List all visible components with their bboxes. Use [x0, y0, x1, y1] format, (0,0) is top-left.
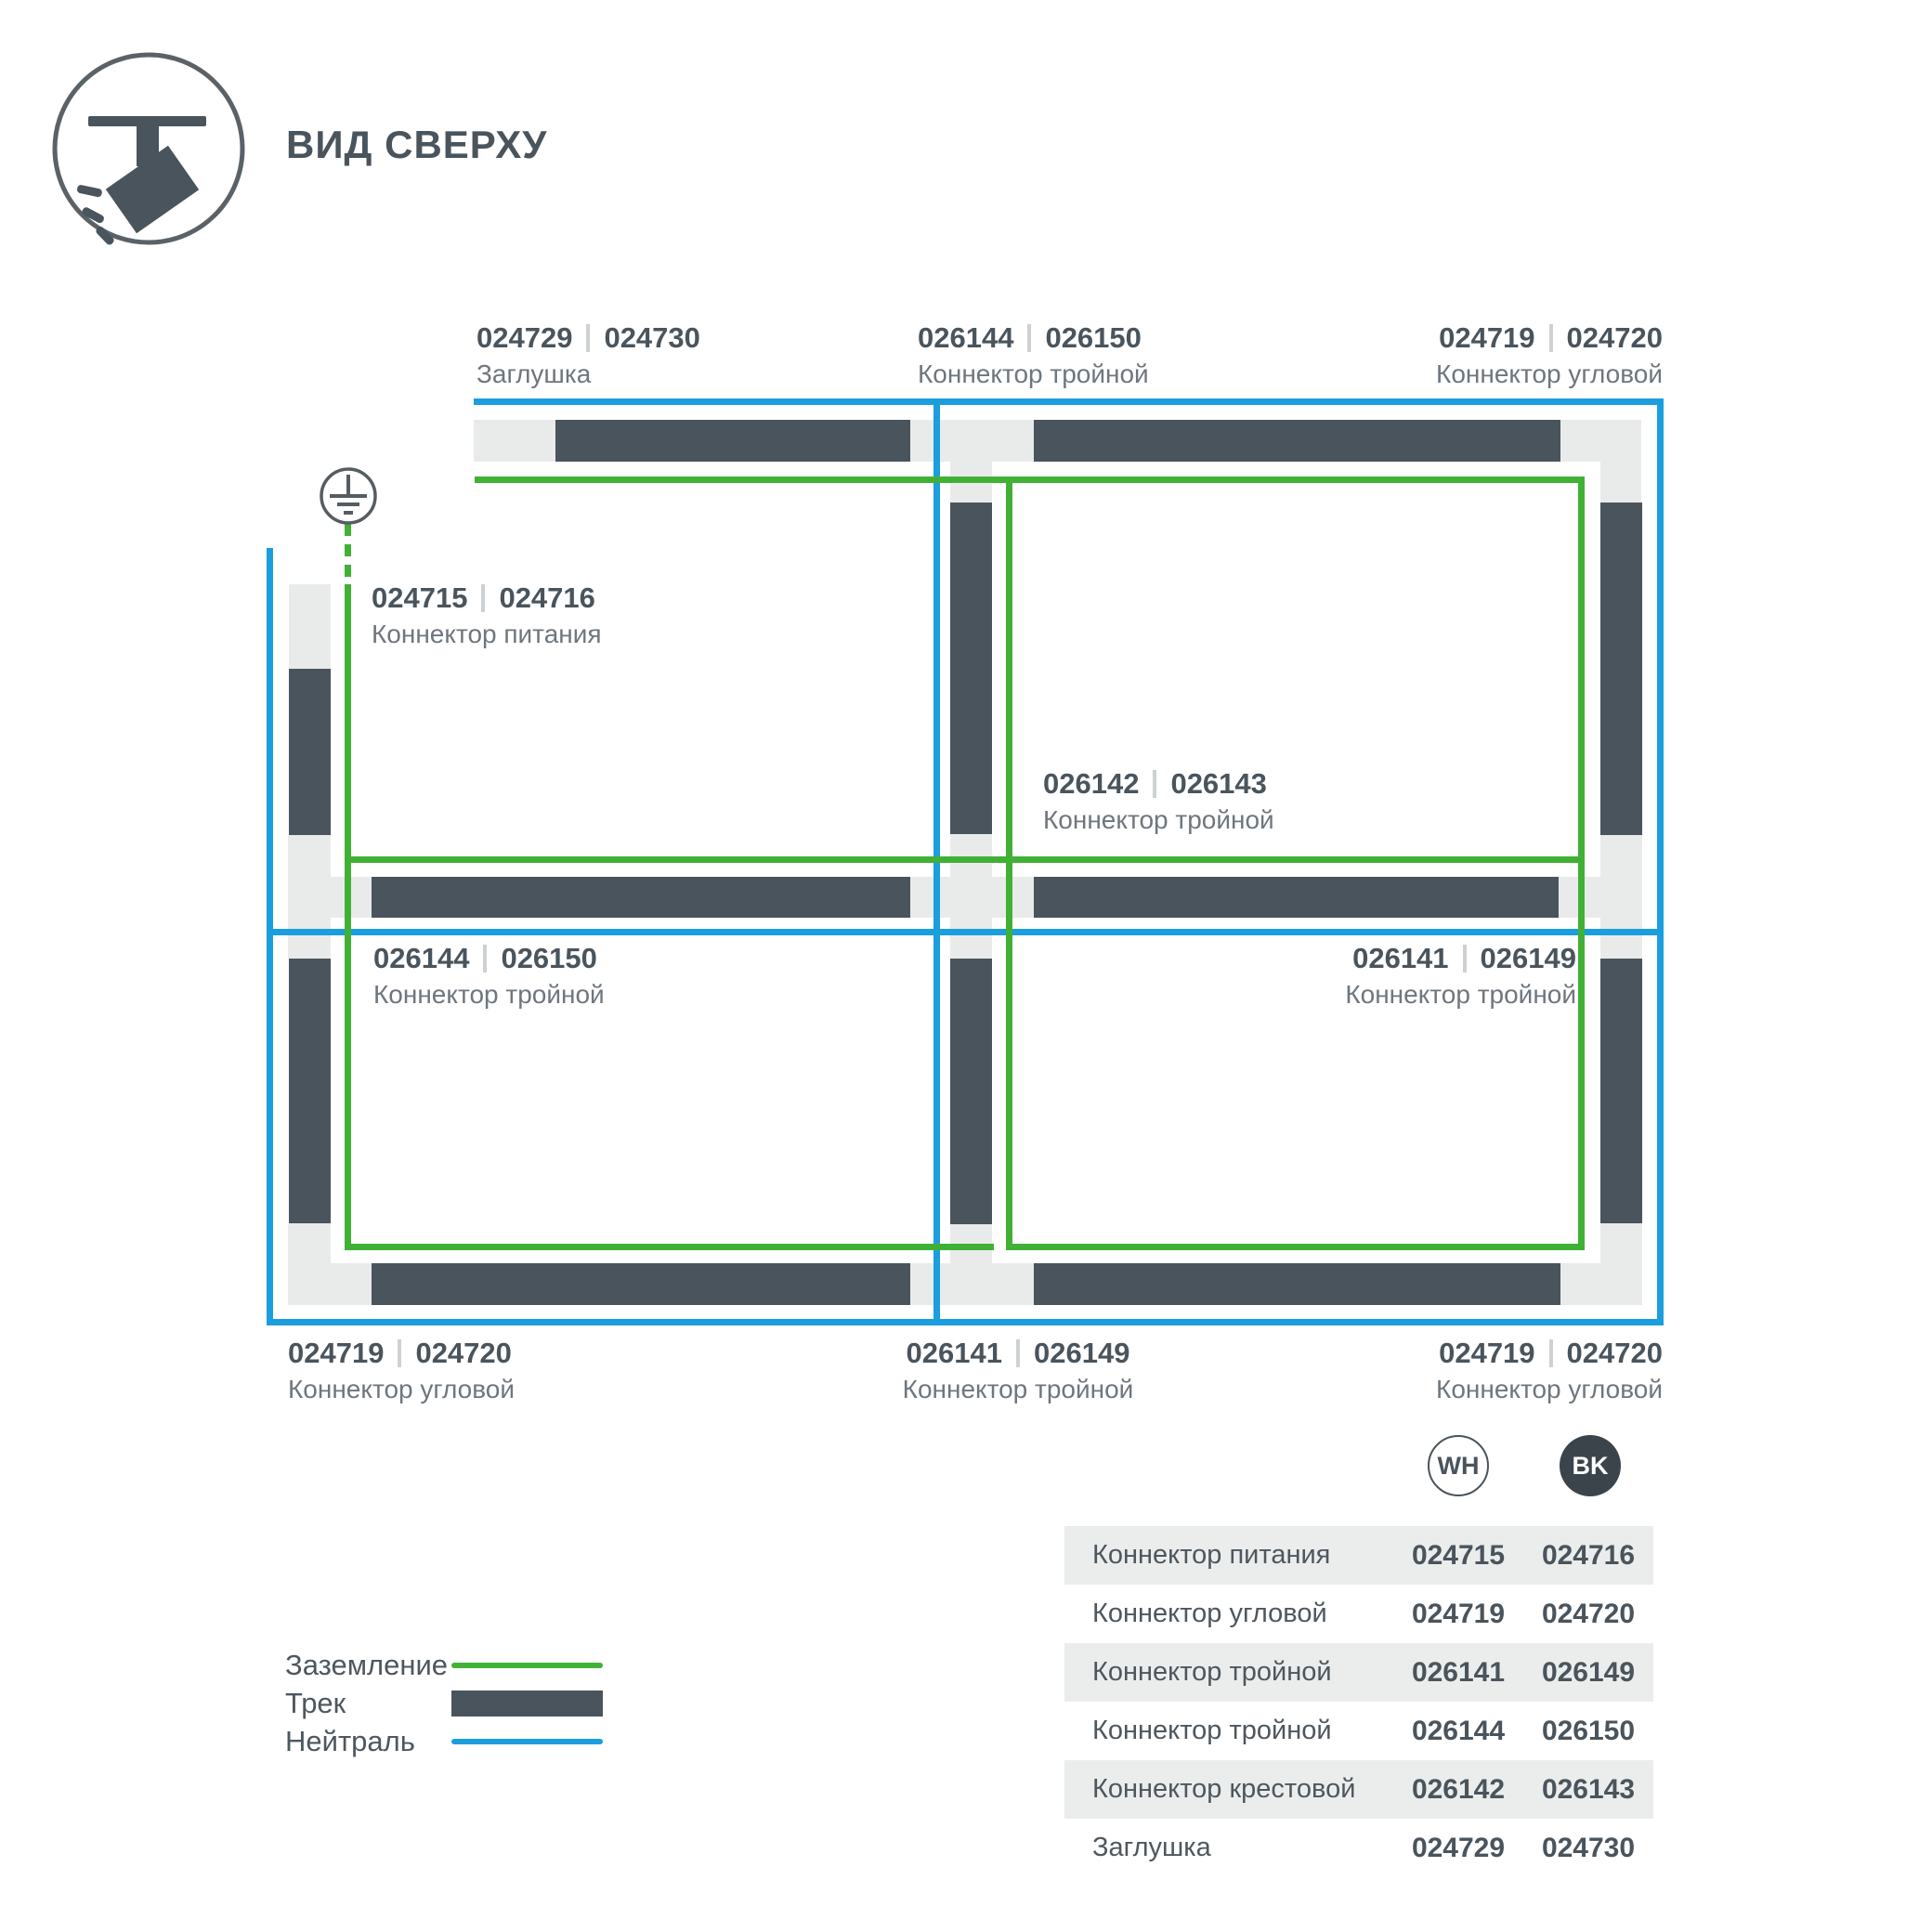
label-cross-connector: 026142026143 Коннектор тройной: [1043, 769, 1274, 835]
separator: [481, 584, 485, 612]
neutral-line-swatch: [451, 1739, 603, 1744]
neutral-line-bottom: [267, 1319, 1664, 1325]
legend-label: Заземление: [285, 1649, 448, 1682]
label-corner-bottom-right: 024719024720 Коннектор угловой: [1436, 1338, 1663, 1404]
track-segment: [372, 877, 910, 918]
row-wh: 026142: [1393, 1774, 1523, 1806]
connector-corner-bottom-right-leg: [1600, 1223, 1642, 1305]
track-spotlight-icon: [51, 51, 246, 246]
row-bk: 024720: [1523, 1599, 1653, 1630]
connector-tee-top: [910, 420, 1034, 462]
article-bk: 024720: [415, 1338, 511, 1367]
connector-endcap: [474, 420, 555, 462]
label-power-connector: 024715024716 Коннектор питания: [372, 583, 602, 649]
row-wh: 026141: [1393, 1657, 1523, 1689]
track-segment: [372, 1263, 910, 1305]
part-name: Коннектор тройной: [903, 1376, 1134, 1404]
badge-label: WH: [1438, 1452, 1480, 1481]
neutral-line-top: [474, 398, 1664, 405]
color-badge-wh: WH: [1428, 1435, 1489, 1496]
row-name: Коннектор крестовой: [1064, 1774, 1393, 1805]
separator: [586, 324, 590, 352]
row-wh: 026144: [1393, 1716, 1523, 1747]
row-bk: 026143: [1523, 1774, 1653, 1806]
article-bk: 026149: [1481, 944, 1576, 973]
connector-cross-stem: [950, 834, 992, 959]
row-bk: 026150: [1523, 1716, 1653, 1747]
ground-line-middle: [345, 856, 1585, 863]
separator: [1016, 1339, 1020, 1367]
track-segment: [1034, 877, 1559, 918]
connector-tee-right-bar: [1600, 835, 1642, 959]
table-row: Коннектор крестовой 026142 026143: [1064, 1760, 1653, 1819]
article-bk: 024720: [1567, 323, 1663, 352]
row-name: Коннектор питания: [1064, 1540, 1393, 1571]
article-bk: 024730: [604, 323, 699, 352]
ground-line-swatch: [451, 1663, 603, 1668]
article-wh: 026144: [373, 944, 469, 973]
part-name: Коннектор угловой: [1436, 1376, 1663, 1404]
label-endcap-top: 024729024730 Заглушка: [476, 323, 700, 389]
legend-label: Нейтраль: [285, 1725, 415, 1758]
legend-item-track: Трек: [285, 1686, 603, 1721]
connector-tee-left-stem: [288, 877, 372, 918]
table-row: Заглушка 024729 024730: [1064, 1819, 1653, 1877]
row-name: Заглушка: [1064, 1833, 1393, 1863]
ground-line-dashed: [345, 524, 351, 585]
connector-tee-bottom: [910, 1263, 1034, 1305]
article-wh: 026142: [1043, 769, 1139, 798]
track-segment: [555, 420, 910, 462]
article-wh: 026141: [1352, 944, 1448, 973]
part-name: Коннектор угловой: [1436, 360, 1663, 389]
row-wh: 024715: [1393, 1540, 1523, 1572]
table-row: Коннектор тройной 026144 026150: [1064, 1702, 1653, 1760]
ground-line-center: [1006, 476, 1012, 1250]
article-bk: 026150: [1045, 323, 1141, 352]
separator: [1027, 324, 1031, 352]
track-segment: [950, 503, 992, 834]
article-wh: 024729: [476, 323, 572, 352]
table-row: Коннектор тройной 026141 026149: [1064, 1643, 1653, 1702]
connector-corner-bottom-left: [288, 1263, 372, 1305]
neutral-line-right: [1657, 398, 1664, 1325]
part-name: Коннектор тройной: [1345, 981, 1576, 1010]
article-bk: 026150: [501, 944, 596, 973]
row-name: Коннектор угловой: [1064, 1599, 1393, 1629]
row-wh: 024729: [1393, 1833, 1523, 1864]
article-wh: 024719: [1439, 323, 1534, 352]
track-segment: [1034, 1263, 1560, 1305]
connector-corner-top-right-leg: [1600, 462, 1641, 503]
row-bk: 026149: [1523, 1657, 1653, 1689]
separator: [1463, 945, 1467, 973]
separator: [398, 1339, 401, 1367]
connector-power: [289, 584, 331, 669]
neutral-line-left: [267, 548, 273, 1325]
ground-line-left: [345, 584, 351, 1250]
label-tee-bottom: 026141026149 Коннектор тройной: [879, 1338, 1157, 1404]
article-bk: 024720: [1567, 1338, 1663, 1367]
separator: [483, 945, 487, 973]
label-tee-top: 026144026150 Коннектор тройной: [918, 323, 1149, 389]
parts-table: WH BK Коннектор питания 024715 024716 Ко…: [1064, 1526, 1653, 1877]
part-name: Коннектор тройной: [373, 981, 605, 1010]
track-segment: [1600, 959, 1642, 1223]
part-name: Заглушка: [476, 360, 700, 389]
article-wh: 024715: [372, 583, 467, 612]
label-tee-right: 026141026149 Коннектор тройной: [1345, 944, 1576, 1010]
separator: [1153, 770, 1156, 798]
row-name: Коннектор тройной: [1064, 1657, 1393, 1688]
table-row: Коннектор угловой 024719 024720: [1064, 1585, 1653, 1643]
legend-item-ground: Заземление: [285, 1648, 603, 1683]
neutral-line-middle: [269, 929, 1657, 935]
connector-corner-top-right: [1560, 420, 1641, 462]
article-wh: 026141: [907, 1338, 1002, 1367]
article-bk: 026149: [1034, 1338, 1129, 1367]
part-name: Коннектор питания: [372, 620, 602, 649]
badge-label: BK: [1573, 1452, 1609, 1481]
article-wh: 024719: [1439, 1338, 1534, 1367]
ground-earth-symbol: [320, 467, 377, 525]
track-segment: [1034, 420, 1560, 462]
ground-line-bottom-right: [1006, 1244, 1585, 1250]
color-badge-bk: BK: [1560, 1435, 1621, 1496]
track-swatch: [451, 1690, 603, 1717]
page: ВИД СВЕРХУ: [0, 0, 1932, 1932]
legend-label: Трек: [285, 1687, 346, 1720]
article-wh: 026144: [918, 323, 1013, 352]
legend-item-neutral: Нейтраль: [285, 1724, 603, 1759]
article-bk: 024716: [499, 583, 594, 612]
separator: [1549, 324, 1553, 352]
label-corner-top-right: 024719024720 Коннектор угловой: [1436, 323, 1663, 389]
part-name: Коннектор тройной: [918, 360, 1149, 389]
page-title: ВИД СВЕРХУ: [286, 123, 547, 167]
ground-line-bottom-left: [345, 1244, 994, 1250]
ground-line-right: [1578, 476, 1585, 1250]
part-name: Коннектор угловой: [288, 1376, 515, 1404]
separator: [1549, 1339, 1553, 1367]
track-segment: [950, 959, 992, 1224]
row-wh: 024719: [1393, 1599, 1523, 1630]
article-bk: 026143: [1170, 769, 1266, 798]
article-wh: 024719: [288, 1338, 384, 1367]
label-tee-left: 026144026150 Коннектор тройной: [373, 944, 605, 1010]
track-segment: [289, 669, 331, 835]
part-name: Коннектор тройной: [1043, 806, 1274, 835]
ground-line-top: [475, 476, 1585, 483]
table-row: Коннектор питания 024715 024716: [1064, 1526, 1653, 1585]
row-bk: 024716: [1523, 1540, 1653, 1572]
track-segment: [1600, 503, 1642, 835]
row-bk: 024730: [1523, 1833, 1653, 1864]
track-segment: [289, 959, 331, 1223]
row-name: Коннектор тройной: [1064, 1716, 1393, 1746]
label-corner-bottom-left: 024719024720 Коннектор угловой: [288, 1338, 515, 1404]
